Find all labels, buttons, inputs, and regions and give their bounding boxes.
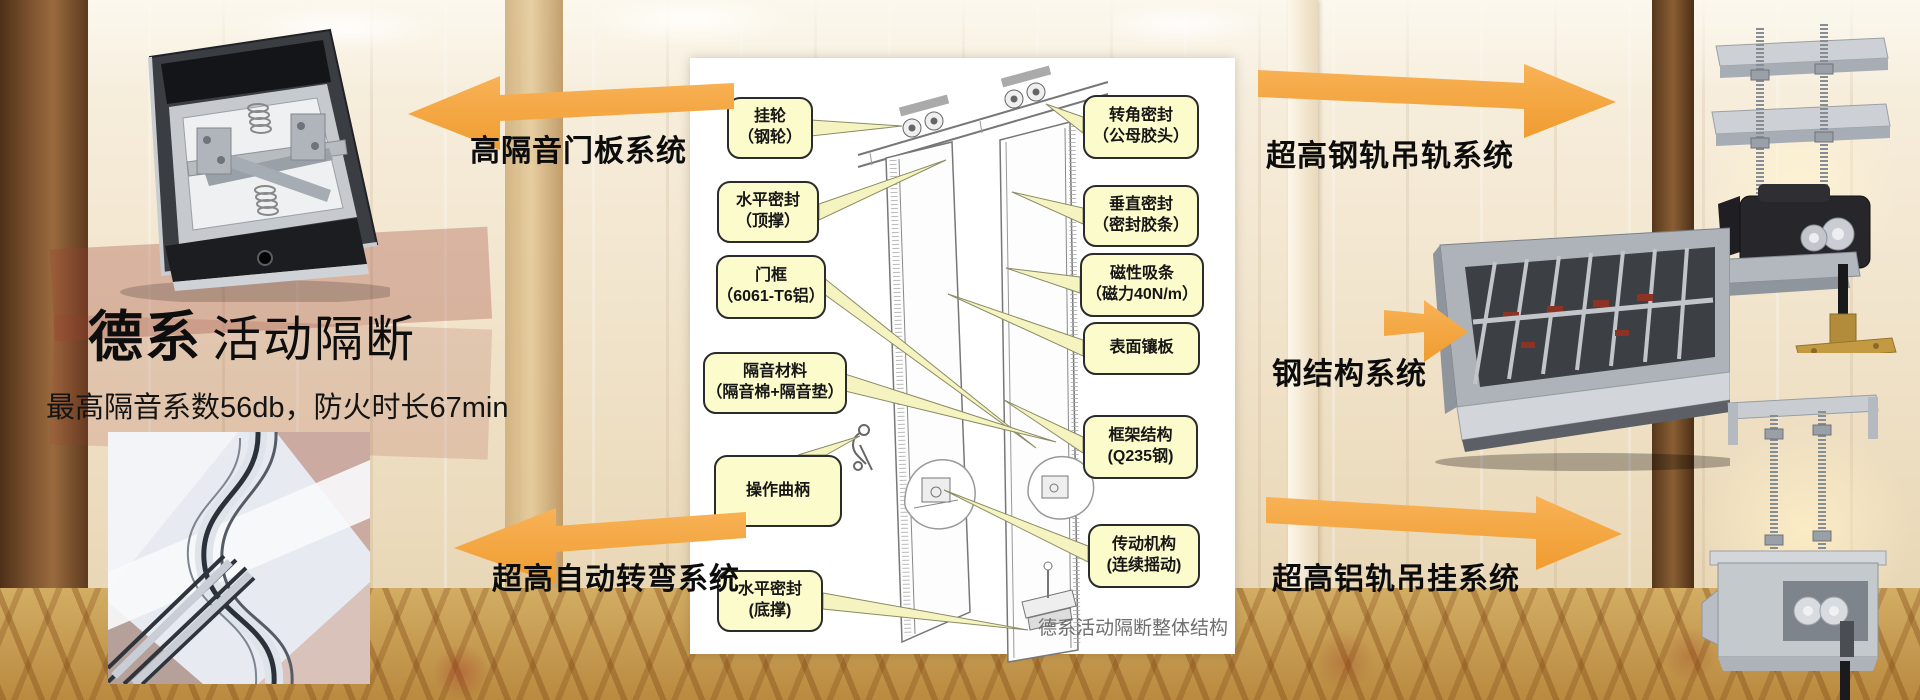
aluminum-rail-hanger-photo bbox=[1688, 385, 1916, 700]
callout-line2: (底撑) bbox=[749, 601, 792, 622]
callout-line1: 磁性吸条 bbox=[1110, 264, 1174, 285]
callout-hanger-wheel: 挂轮 （钢轮） bbox=[727, 97, 813, 159]
callout-line1: 传动机构 bbox=[1112, 535, 1176, 556]
background-pillar bbox=[1288, 0, 1318, 640]
callout-line1: 隔音材料 bbox=[743, 362, 807, 383]
callout-line2: （钢轮） bbox=[738, 128, 802, 149]
callout-line2: (连续摇动) bbox=[1107, 556, 1182, 577]
callout-surface-panel: 表面镶板 bbox=[1083, 322, 1200, 375]
callout-line1: 垂直密封 bbox=[1109, 195, 1173, 216]
callout-magnetic-strip: 磁性吸条 （磁力40N/m） bbox=[1080, 253, 1204, 317]
callout-line2: (Q235钢) bbox=[1108, 447, 1174, 468]
promo-banner: 挂轮 （钢轮） 水平密封 （顶撑） 门框 （6061-T6铝） 隔音材料 （隔音… bbox=[0, 0, 1920, 700]
callout-vertical-seal: 垂直密封 （密封胶条） bbox=[1083, 185, 1199, 247]
callout-operating-crank: 操作曲柄 bbox=[714, 455, 842, 527]
callout-line2: （顶撑） bbox=[736, 212, 800, 233]
callout-line2: （密封胶条） bbox=[1093, 216, 1189, 237]
hero-title: 德系 活动隔断 bbox=[88, 292, 416, 372]
door-panel-mechanism-illustration bbox=[95, 12, 390, 302]
brand-name: 德系 bbox=[88, 292, 202, 372]
callout-line2: （6061-T6铝） bbox=[717, 287, 825, 308]
callout-line1: 门框 bbox=[755, 266, 787, 287]
product-name: 活动隔断 bbox=[212, 300, 416, 371]
callout-line2: （磁力40N/m） bbox=[1086, 285, 1198, 306]
callout-door-frame: 门框 （6061-T6铝） bbox=[716, 255, 826, 319]
callout-line1: 挂轮 bbox=[754, 107, 786, 128]
label-door-panel-system: 高隔音门板系统 bbox=[470, 126, 687, 170]
callout-line2: （公母胶头） bbox=[1093, 127, 1189, 148]
label-aluminum-rail-system: 超高铝轨吊挂系统 bbox=[1272, 554, 1520, 598]
hero-subtitle: 最高隔音系数56db，防火时长67min bbox=[46, 384, 509, 426]
label-steel-rail-system: 超高钢轨吊轨系统 bbox=[1266, 131, 1514, 175]
callout-corner-seal: 转角密封 （公母胶头） bbox=[1083, 95, 1199, 159]
steel-structure-photo bbox=[1425, 222, 1730, 472]
label-auto-turning-system: 超高自动转弯系统 bbox=[492, 554, 740, 598]
diagram-caption: 德系活动隔断整体结构 bbox=[1038, 613, 1228, 640]
callout-line1: 表面镶板 bbox=[1109, 338, 1173, 359]
callout-line1: 框架结构 bbox=[1108, 426, 1172, 447]
callout-sound-insulation: 隔音材料 （隔音棉+隔音垫） bbox=[703, 352, 847, 414]
curved-track-illustration bbox=[108, 432, 370, 684]
background-pillar bbox=[505, 0, 563, 640]
aluminum-rail-hanger-illustration bbox=[1688, 385, 1916, 700]
callout-transmission: 传动机构 (连续摇动) bbox=[1088, 524, 1200, 588]
callout-line2: （隔音棉+隔音垫） bbox=[706, 383, 843, 404]
callout-line1: 转角密封 bbox=[1109, 106, 1173, 127]
label-steel-structure-system: 钢结构系统 bbox=[1272, 349, 1427, 393]
callout-frame-structure: 框架结构 (Q235钢) bbox=[1083, 415, 1198, 479]
door-panel-mechanism-photo bbox=[95, 12, 390, 302]
callout-line1: 操作曲柄 bbox=[746, 481, 810, 502]
callout-line1: 水平密封 bbox=[736, 191, 800, 212]
curved-track-photo bbox=[108, 432, 370, 684]
callout-line1: 水平密封 bbox=[738, 580, 802, 601]
callout-horizontal-seal-top: 水平密封 （顶撑） bbox=[717, 181, 819, 243]
steel-structure-illustration bbox=[1425, 222, 1730, 472]
